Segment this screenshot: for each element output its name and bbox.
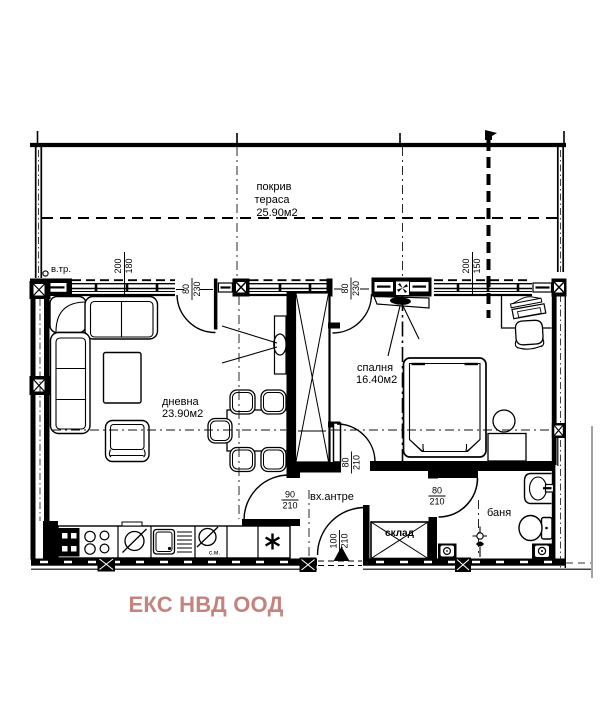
- svg-text:80: 80: [181, 284, 191, 294]
- svg-text:210: 210: [282, 501, 297, 511]
- svg-text:баня: баня: [487, 507, 511, 519]
- svg-text:с.м.: с.м.: [209, 550, 221, 557]
- svg-text:ЕКС НВД ООД: ЕКС НВД ООД: [129, 592, 284, 617]
- svg-text:16.40м2: 16.40м2: [356, 374, 397, 386]
- svg-text:в.тр.: в.тр.: [51, 264, 71, 275]
- svg-text:дневна: дневна: [162, 396, 200, 408]
- svg-text:210: 210: [429, 497, 444, 507]
- svg-text:25.90м2: 25.90м2: [256, 207, 297, 219]
- svg-text:210: 210: [340, 533, 350, 548]
- svg-text:тераса: тераса: [255, 194, 291, 206]
- svg-text:150: 150: [472, 258, 482, 273]
- svg-text:склад: склад: [385, 528, 415, 539]
- svg-text:вх.антре: вх.антре: [310, 491, 354, 503]
- svg-text:спалня: спалня: [357, 362, 393, 374]
- svg-text:230: 230: [351, 281, 361, 296]
- svg-text:200: 200: [461, 258, 471, 273]
- svg-text:80: 80: [341, 457, 351, 467]
- svg-text:210: 210: [352, 455, 362, 470]
- svg-text:23.90м2: 23.90м2: [162, 408, 203, 420]
- svg-text:покрив: покрив: [257, 181, 292, 193]
- svg-text:200: 200: [113, 258, 123, 273]
- svg-text:180: 180: [124, 258, 134, 273]
- svg-text:80: 80: [432, 486, 442, 496]
- svg-text:80: 80: [340, 283, 350, 293]
- svg-text:100: 100: [329, 533, 339, 548]
- svg-text:90: 90: [285, 490, 295, 500]
- svg-text:230: 230: [192, 281, 202, 296]
